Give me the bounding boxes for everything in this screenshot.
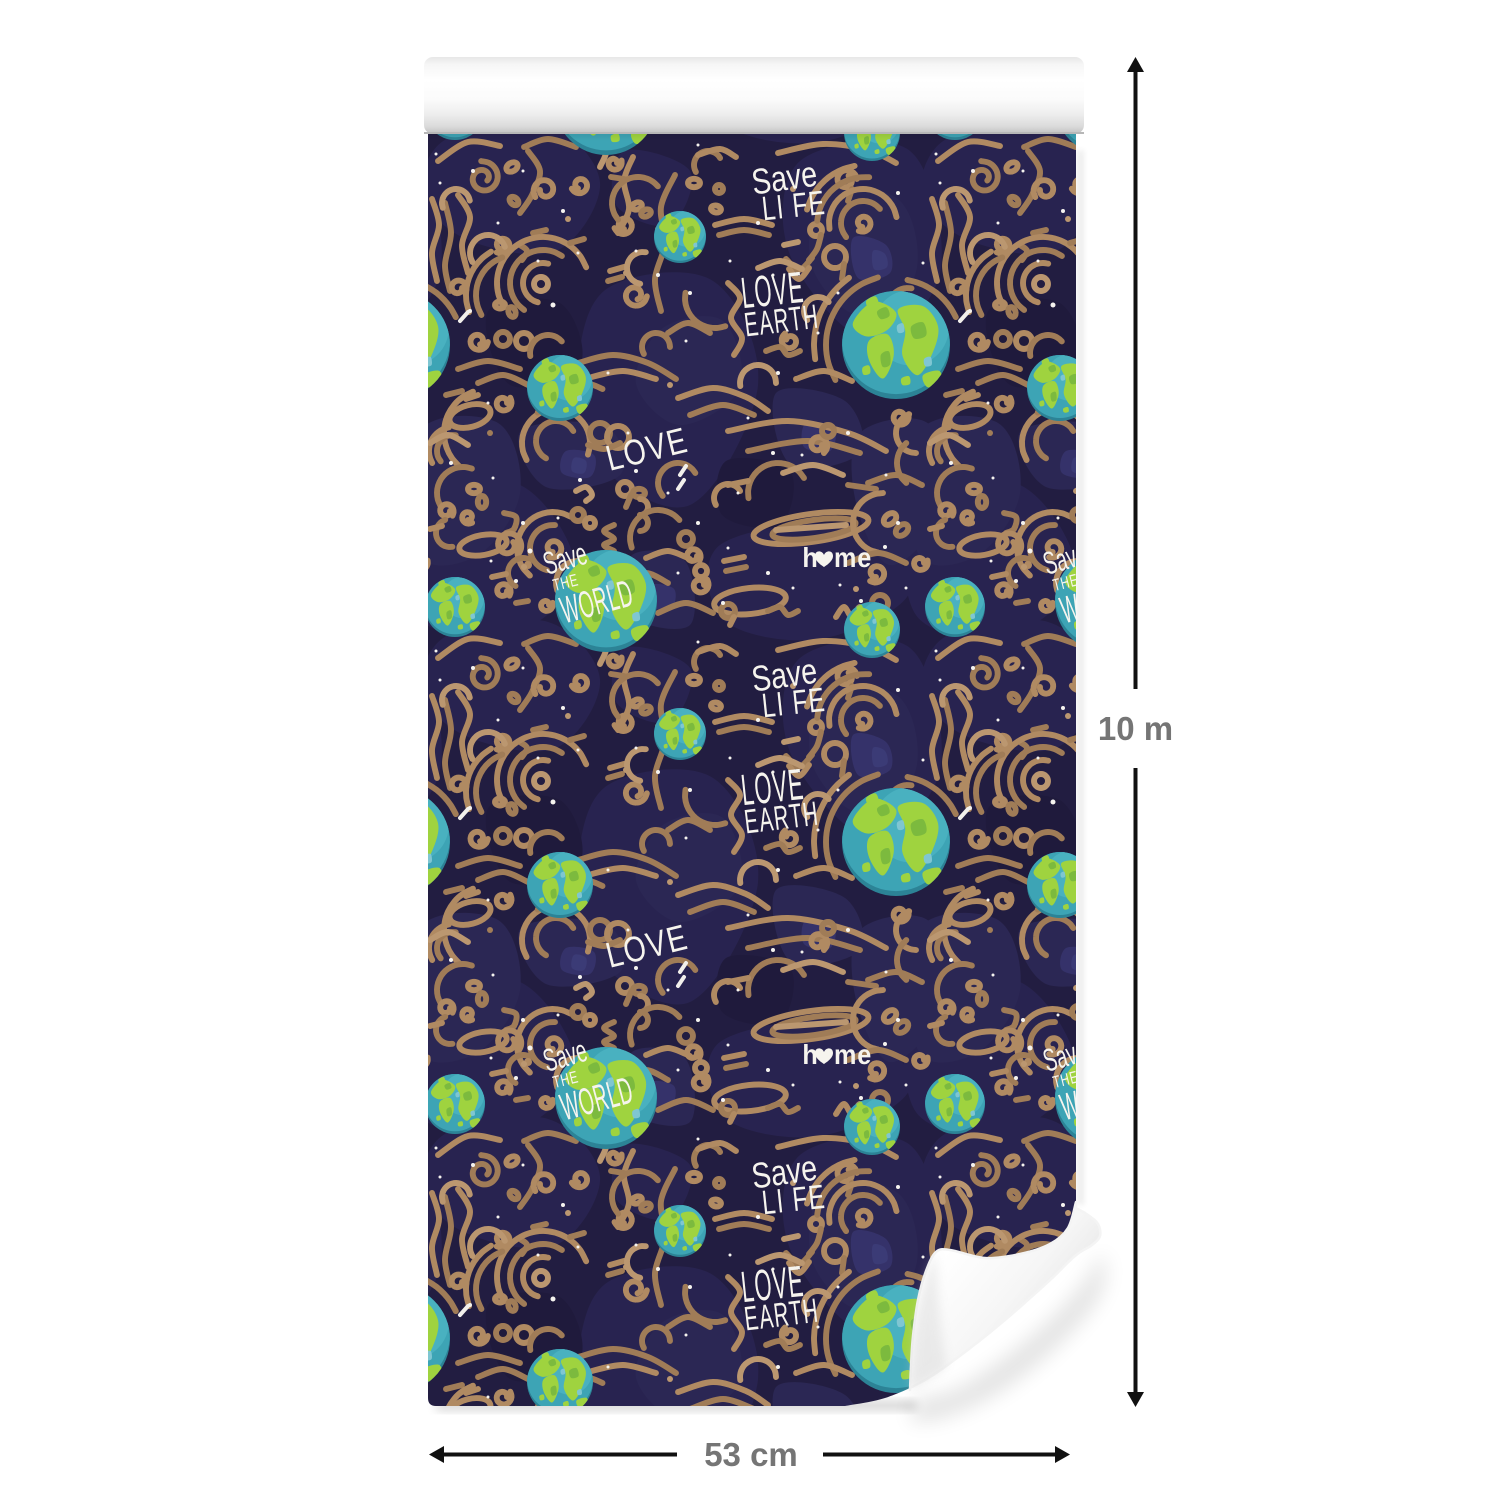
svg-text:53 cm: 53 cm	[704, 1436, 798, 1473]
svg-text:10 m: 10 m	[1098, 710, 1173, 747]
